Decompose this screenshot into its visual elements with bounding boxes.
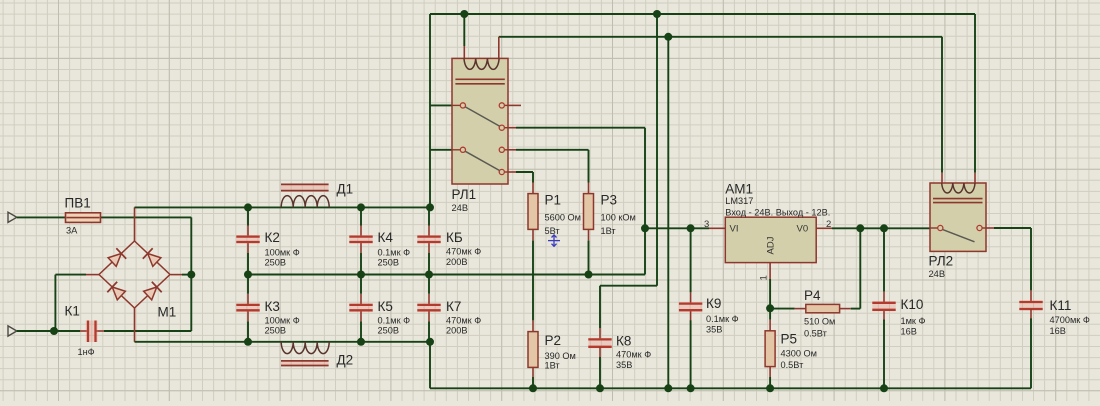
svg-text:100 кОм: 100 кОм (601, 213, 636, 223)
svg-text:3: 3 (704, 219, 709, 230)
svg-text:470мк Ф: 470мк Ф (446, 247, 481, 257)
svg-text:470мк Ф: 470мк Ф (616, 350, 651, 360)
svg-text:5600 Ом: 5600 Ом (545, 213, 581, 223)
svg-text:100мк Ф: 100мк Ф (265, 316, 300, 326)
svg-text:М1: М1 (158, 305, 177, 320)
svg-text:3А: 3А (66, 226, 78, 236)
svg-text:0.1мк Ф: 0.1мк Ф (378, 248, 411, 258)
svg-text:LM317: LM317 (725, 196, 753, 206)
svg-text:Вход - 24В. Выход - 12В.: Вход - 24В. Выход - 12В. (725, 207, 830, 217)
svg-text:Д2: Д2 (337, 353, 354, 368)
svg-text:К9: К9 (706, 296, 721, 311)
svg-text:1Вт: 1Вт (601, 226, 617, 236)
svg-text:1: 1 (759, 275, 770, 280)
svg-text:470мк Ф: 470мк Ф (446, 316, 481, 326)
svg-text:К4: К4 (378, 230, 394, 245)
svg-text:VI: VI (730, 224, 739, 235)
svg-text:1мк Ф: 1мк Ф (901, 316, 926, 326)
svg-text:35В: 35В (616, 360, 632, 370)
svg-text:РЛ1: РЛ1 (452, 187, 477, 202)
svg-text:250В: 250В (378, 258, 399, 268)
svg-text:К11: К11 (1050, 298, 1072, 313)
svg-text:100мк Ф: 100мк Ф (265, 248, 300, 258)
svg-text:Р4: Р4 (804, 288, 821, 303)
svg-text:Р1: Р1 (545, 193, 562, 208)
svg-text:5Вт: 5Вт (545, 226, 561, 236)
svg-text:Р2: Р2 (545, 333, 562, 348)
svg-text:Д1: Д1 (337, 182, 354, 197)
svg-text:24В: 24В (452, 203, 469, 213)
svg-text:К2: К2 (265, 230, 280, 245)
svg-text:250В: 250В (265, 258, 286, 268)
svg-text:24В: 24В (929, 269, 946, 279)
svg-text:250В: 250В (265, 326, 286, 336)
svg-text:ПВ1: ПВ1 (65, 196, 91, 211)
svg-text:200В: 200В (446, 326, 467, 336)
svg-text:4700мк Ф: 4700мк Ф (1050, 315, 1090, 325)
svg-text:КБ: КБ (446, 230, 463, 245)
svg-text:510 Ом: 510 Ом (804, 317, 835, 327)
svg-text:0.5Вт: 0.5Вт (804, 329, 828, 339)
svg-text:К10: К10 (901, 297, 924, 312)
svg-text:390 Ом: 390 Ом (545, 351, 576, 361)
svg-text:16В: 16В (901, 327, 917, 337)
svg-text:ADJ: ADJ (766, 236, 777, 254)
svg-text:4300 Ом: 4300 Ом (781, 349, 817, 359)
svg-text:1Вт: 1Вт (545, 361, 561, 371)
svg-text:0.5Вт: 0.5Вт (781, 360, 805, 370)
svg-text:35В: 35В (706, 325, 722, 335)
svg-text:Р5: Р5 (781, 332, 798, 347)
svg-text:16В: 16В (1050, 326, 1066, 336)
svg-text:К7: К7 (446, 299, 461, 314)
svg-text:К5: К5 (378, 299, 393, 314)
svg-text:К1: К1 (65, 304, 80, 319)
svg-text:0.1мк Ф: 0.1мк Ф (706, 314, 739, 324)
svg-text:200В: 200В (446, 257, 467, 267)
svg-text:АМ1: АМ1 (725, 182, 753, 197)
svg-text:РЛ2: РЛ2 (929, 254, 954, 269)
svg-text:К8: К8 (616, 334, 631, 349)
svg-text:0.1мк Ф: 0.1мк Ф (378, 316, 411, 326)
svg-text:V0: V0 (797, 224, 809, 235)
svg-text:К3: К3 (265, 299, 280, 314)
svg-text:Р3: Р3 (601, 193, 618, 208)
svg-text:250В: 250В (378, 326, 399, 336)
svg-text:1нФ: 1нФ (78, 347, 95, 357)
